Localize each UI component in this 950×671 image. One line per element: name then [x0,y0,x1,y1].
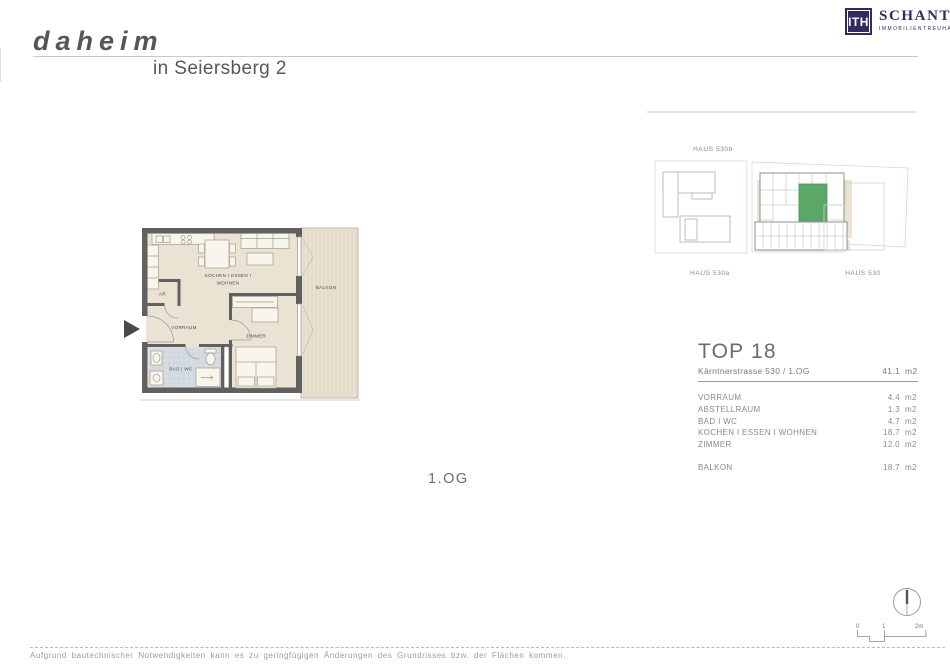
balcony-area [301,228,358,398]
room-label-kitchen-2: WOHNEN [217,281,240,286]
company-logo: ITH SCHANTL IMMOBILIENTREUHAND [845,8,950,35]
left-edge-tick [0,48,1,82]
washing-machine [150,371,163,385]
table-row: BALKON 18.7m2 [698,463,918,475]
entry-arrow-icon [124,320,140,338]
header-rule [33,56,918,57]
location-subtitle: in Seiersberg 2 [153,58,287,80]
room-label-ar: AR [159,292,166,297]
scale-0: 0 [856,624,860,630]
exposé-page: daheim in Seiersberg 2 ITH SCHANTL IMMOB… [0,0,950,671]
scale-1: 1 [882,624,886,630]
room-label-kitchen-1: KOCHEN I ESSEN I [205,273,251,278]
floorplan-drawing: KOCHEN I ESSEN I WOHNEN AR VORRAUM ZIMME… [115,220,365,405]
room-label-balkon: BALKON [316,285,336,290]
siteplan-drawing: HAUS 530b HAUS 530a HAUS 530 [645,105,940,290]
pillow [238,377,255,386]
highlighted-unit [799,184,827,222]
toilet [206,353,215,365]
scale-labels: 0 1 2m [856,624,923,630]
room-label-vorraum: VORRAUM [171,325,197,330]
building-530b [663,172,730,242]
room-label-bad: BAD | WC [169,367,193,372]
compass-icon [894,589,921,616]
label-haus-530b: HAUS 530b [693,146,733,153]
label-haus-530a: HAUS 530a [690,270,730,277]
disclaimer-text: Aufgrund bautechnischer Notwendigkeiten … [30,651,566,660]
building-530a [755,173,852,251]
toilet-tank [205,349,216,353]
unit-divider [698,381,918,382]
table-row: VORRAUM 4.4m2 [698,393,918,405]
scale-bar: 0 1 2m [856,624,926,642]
unit-address: Kärntnerstrasse 530 / 1.OG [698,366,810,376]
unit-title: TOP 18 [698,341,918,363]
table-row: KOCHEN I ESSEN I WOHNEN 18.7m2 [698,428,918,440]
company-tagline: IMMOBILIENTREUHAND [879,26,950,32]
table-row: ZIMMER 12.0m2 [698,440,918,452]
room-label-zimmer: ZIMMER [246,334,266,339]
dresser [252,308,278,322]
level-label: 1.OG [428,471,469,487]
unit-total-area: 41.1m2 [882,366,918,376]
shaft [225,347,229,388]
scale-2m: 2m [915,624,923,630]
room-table: VORRAUM 4.4m2 ABSTELLRAUM 1.3m2 BAD I WC… [698,393,918,475]
ith-logo-icon: ITH [845,8,872,35]
disclaimer-divider [30,647,945,648]
pillow [258,377,275,386]
company-name: SCHANTL [879,8,950,24]
unit-summary: TOP 18 Kärntnerstrasse 530 / 1.OG 41.1m2… [698,341,918,475]
brand-logo: daheim [33,26,164,57]
map-tools: 0 1 2m [845,580,945,648]
ottoman [247,253,273,265]
label-haus-530: HAUS 530 [845,270,881,277]
table-row: BAD I WC 4.7m2 [698,417,918,429]
dining-table [205,240,229,268]
table-row: ABSTELLRAUM 1.3m2 [698,405,918,417]
sofa [241,234,289,249]
